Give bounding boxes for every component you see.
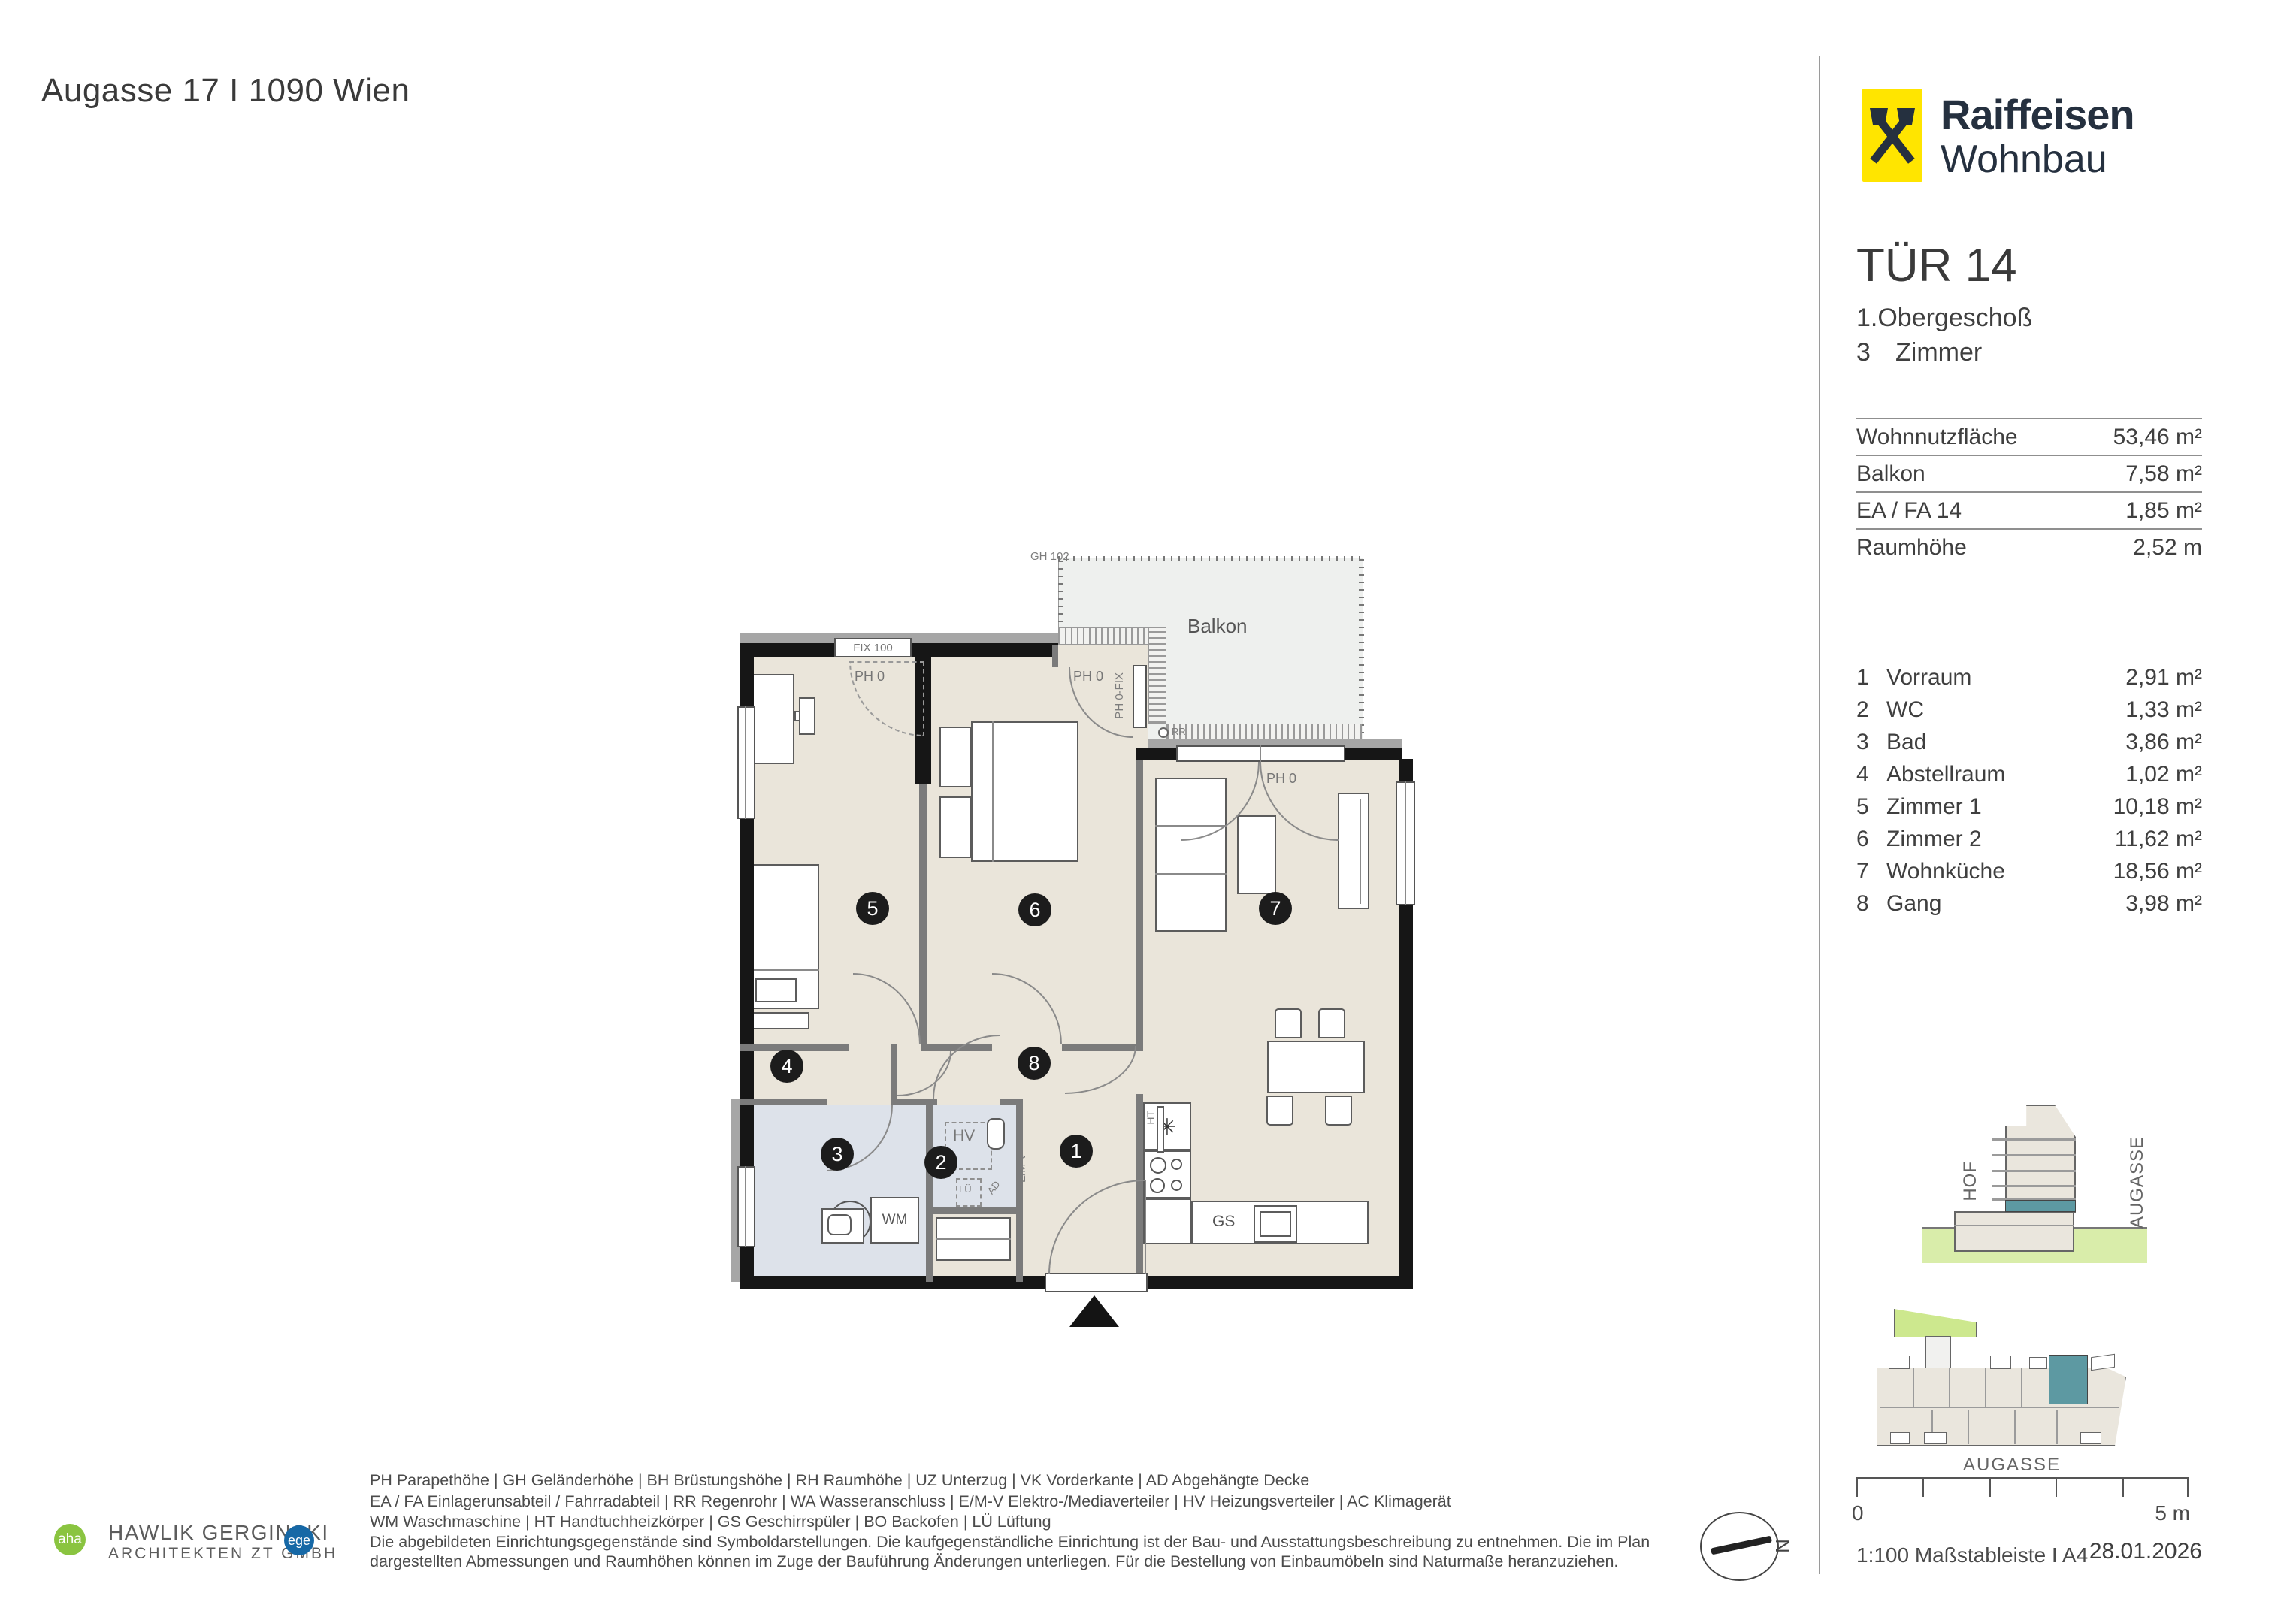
wall-bad-wc <box>926 1099 933 1282</box>
table-row: EA / FA 141,85 m² <box>1856 493 2202 530</box>
legend-line: PH Parapethöhe | GH Geländerhöhe | BH Br… <box>370 1471 1309 1490</box>
area-summary-table: Wohnnutzfläche53,46 m² Balkon7,58 m² EA … <box>1856 418 2202 565</box>
room-area: 2,91 m² <box>2125 665 2202 691</box>
footprint-bump <box>2080 1432 2101 1444</box>
room-no: 1 <box>1856 665 1886 691</box>
stove <box>1143 1150 1191 1198</box>
list-item: 5Zimmer 110,18 m² <box>1856 790 2202 823</box>
parapet-label: PH 0 <box>855 669 885 685</box>
door-leaf <box>1145 1180 1146 1274</box>
bed-double <box>971 721 1078 862</box>
window-line <box>745 1166 746 1247</box>
building-podium <box>1954 1211 2074 1252</box>
shelf <box>799 697 815 735</box>
footprint-bump <box>1990 1356 2011 1369</box>
unit-divider <box>2014 1410 2016 1444</box>
room-name: Zimmer 2 <box>1886 827 1982 852</box>
rainpipe-icon <box>1158 727 1169 738</box>
wall-bad-top <box>891 1099 926 1105</box>
scale-zero: 0 <box>1852 1501 1864 1525</box>
table-row: Raumhöhe2,52 m <box>1856 530 2202 565</box>
room-no: 3 <box>1856 730 1886 755</box>
window-fix: FIX 100 <box>834 638 912 657</box>
shelf <box>794 711 800 721</box>
row-value: 1,85 m² <box>2125 498 2202 524</box>
list-item: 3Bad3,86 m² <box>1856 726 2202 758</box>
wall-room4 <box>891 1044 897 1099</box>
room-area: 10,18 m² <box>2113 794 2202 820</box>
floor-slab-line <box>1992 1154 2076 1156</box>
nightstand <box>939 727 971 787</box>
scale-tick <box>2187 1477 2189 1497</box>
room-no: 4 <box>1856 762 1886 787</box>
entrance-door <box>1045 1273 1148 1292</box>
parapet-label: PH 0 <box>1073 669 1103 685</box>
raiffeisen-logo-icon <box>1862 89 1922 182</box>
room-name: Bad <box>1886 730 1926 755</box>
unit-divider <box>1985 1368 1986 1407</box>
scale-max: 5 m <box>2143 1501 2190 1525</box>
room-badge-8: 8 <box>1018 1047 1051 1080</box>
scale-tick <box>1922 1477 1924 1497</box>
nightstand <box>939 796 971 858</box>
washing-machine: WM <box>870 1197 919 1244</box>
floor-slab-line <box>1992 1185 2076 1187</box>
project-address: Augasse 17 I 1090 Wien <box>41 72 410 110</box>
wardrobe <box>750 674 794 764</box>
stove-burner-icon <box>1150 1178 1165 1193</box>
panel-divider-line <box>1819 56 1820 1574</box>
unit-divider <box>1968 1410 1969 1444</box>
unit-divider <box>1949 1368 1950 1407</box>
room-area: 3,86 m² <box>2125 730 2202 755</box>
room-area: 1,33 m² <box>2125 697 2202 723</box>
legend-line: WM Waschmaschine | HT Handtuchheizkörper… <box>370 1513 1051 1531</box>
brand-name-line1: Raiffeisen <box>1941 90 2134 139</box>
unit-divider <box>1913 1368 1914 1407</box>
table-row: Wohnnutzfläche53,46 m² <box>1856 419 2202 456</box>
towel-radiator <box>1157 1106 1164 1153</box>
room-badge-2: 2 <box>924 1146 957 1179</box>
footprint-bump <box>1890 1432 1910 1444</box>
balcony-railing <box>1058 556 1364 561</box>
wall-room5-6 <box>919 784 927 1044</box>
window-line <box>1405 781 1406 905</box>
room-badge-1: 1 <box>1060 1135 1093 1168</box>
room-area: 18,56 m² <box>2113 859 2202 884</box>
chair <box>1325 1096 1352 1126</box>
stove-burner-icon <box>1171 1180 1182 1191</box>
balcony-label: Balkon <box>1187 615 1248 638</box>
scale-bar-line <box>1856 1477 2189 1479</box>
lueftung-label: LÜ <box>959 1183 972 1195</box>
door-mullion <box>1260 745 1261 762</box>
unit-divider <box>2056 1410 2058 1444</box>
room-name: Zimmer 1 <box>1886 794 1982 820</box>
room-name: Vorraum <box>1886 665 1971 691</box>
balcony-decking <box>1148 627 1166 724</box>
bed-line <box>992 721 994 862</box>
floor-slab-line <box>1992 1170 2076 1172</box>
window-line <box>745 706 746 819</box>
toilet <box>987 1118 1005 1150</box>
scale-tick <box>1856 1477 1858 1497</box>
giebelkreuz-icon <box>1862 89 1922 182</box>
brand-name-line2: Wohnbau <box>1941 137 2107 182</box>
room-area: 3,98 m² <box>2125 891 2202 917</box>
room-area: 11,62 m² <box>2115 827 2202 852</box>
scale-tick <box>2056 1477 2057 1497</box>
row-label: EA / FA 14 <box>1856 498 1962 524</box>
railing-height-label: GH 102 <box>1030 550 1069 563</box>
augasse-side-label: AUGASSE <box>2127 1136 2148 1229</box>
row-value: 53,46 m² <box>2113 425 2202 450</box>
unit-floor: 1.Obergeschoß <box>1856 304 2032 333</box>
green-parcel <box>1894 1307 1977 1337</box>
bench <box>752 1012 809 1029</box>
augasse-street-label: AUGASSE <box>1963 1455 2061 1476</box>
room-area: 1,02 m² <box>2125 762 2202 787</box>
bed-line <box>752 969 819 971</box>
north-label: N <box>1771 1539 1794 1553</box>
entrance-arrow-icon <box>1069 1295 1119 1327</box>
parapet-label: PH 0 <box>1266 771 1296 787</box>
sofa-line <box>1155 873 1227 875</box>
dining-table <box>1267 1041 1365 1093</box>
wall-wc-right <box>1016 1099 1023 1282</box>
balcony-decking <box>1058 627 1148 645</box>
footprint-bump <box>2091 1354 2115 1371</box>
balcony-door-room6 <box>1133 665 1147 728</box>
room-no: 6 <box>1856 827 1886 852</box>
room-name: Abstellraum <box>1886 762 2005 787</box>
chair <box>1266 1096 1293 1126</box>
wm-label: WM <box>882 1212 908 1228</box>
aha-logo-icon: aha <box>54 1524 86 1555</box>
rainpipe-label: RR <box>1172 726 1186 737</box>
list-item: 4Abstellraum1,02 m² <box>1856 758 2202 790</box>
list-item: 6Zimmer 211,62 m² <box>1856 823 2202 855</box>
balcony-decking <box>1166 724 1362 741</box>
balcony-railing <box>1359 558 1364 741</box>
row-label: Raumhöhe <box>1856 535 1967 561</box>
wall-wc-top <box>926 1099 937 1105</box>
room-name: Wohnküche <box>1886 859 2005 884</box>
unit-rooms-word: Zimmer <box>1895 338 1982 367</box>
legend-line: EA / FA Einlagerunsabteil / Fahrradabtei… <box>370 1492 1451 1511</box>
footprint-bump <box>1889 1356 1910 1369</box>
washbasin-bowl <box>827 1214 852 1235</box>
stove-burner-icon <box>1171 1159 1182 1170</box>
scale-tick <box>2122 1477 2124 1497</box>
highlighted-unit <box>2049 1355 2088 1404</box>
podium-floor-line <box>1954 1225 2074 1226</box>
room-name: WC <box>1886 697 1924 723</box>
dishwasher-label: GS <box>1212 1213 1235 1231</box>
list-item: 1Vorraum2,91 m² <box>1856 661 2202 694</box>
room-badge-5: 5 <box>856 892 889 925</box>
floor-slab-line <box>1992 1138 2076 1141</box>
coffee-table <box>1237 815 1276 894</box>
list-item: 8Gang3,98 m² <box>1856 887 2202 920</box>
ht-label: HT <box>1145 1111 1157 1125</box>
cabinet-tall <box>1338 793 1369 909</box>
list-item: 7Wohnküche18,56 m² <box>1856 855 2202 887</box>
scale-tick <box>1989 1477 1991 1497</box>
footprint-bump <box>2029 1357 2047 1369</box>
wall-stub <box>1052 645 1058 667</box>
room-no: 7 <box>1856 859 1886 884</box>
row-label: Balkon <box>1856 461 1925 487</box>
duct-line <box>936 1238 1011 1240</box>
chair <box>1275 1008 1302 1038</box>
room-no: 5 <box>1856 794 1886 820</box>
kitchen-sink: ✳ <box>1143 1102 1191 1150</box>
row-label: Wohnnutzfläche <box>1856 425 2018 450</box>
table-row: Balkon7,58 m² <box>1856 456 2202 493</box>
stove-burner-icon <box>1150 1157 1166 1174</box>
room-badge-4: 4 <box>770 1050 803 1083</box>
window <box>737 706 755 819</box>
wall-wc-bottom <box>926 1207 1023 1214</box>
footprint-bump <box>1924 1432 1947 1444</box>
hof-label: HOF <box>1960 1161 1981 1201</box>
row-value: 2,52 m <box>2133 535 2202 561</box>
corridor-line <box>1880 1407 2119 1408</box>
cabinet-line <box>1360 799 1361 904</box>
room-name: Gang <box>1886 891 1941 917</box>
chair <box>1318 1008 1345 1038</box>
hv-label: HV <box>953 1127 975 1145</box>
room-badge-7: 7 <box>1259 892 1292 925</box>
building-tower <box>2005 1105 2076 1213</box>
room-badge-3: 3 <box>821 1138 854 1171</box>
pillow <box>755 978 797 1002</box>
ege-logo-icon: ege <box>284 1525 314 1555</box>
wall-room6-7 <box>1136 760 1143 1044</box>
fix-window-label: FIX 100 <box>853 642 893 654</box>
unit-title: TÜR 14 <box>1856 239 2017 292</box>
highlighted-floor <box>2005 1200 2076 1212</box>
unit-divider <box>2021 1368 2022 1407</box>
list-item: 2WC1,33 m² <box>1856 694 2202 726</box>
wall-bad-top <box>740 1099 827 1105</box>
unit-rooms-number: 3 <box>1856 338 1871 367</box>
building-wing <box>1925 1336 1951 1369</box>
floor-plan: GH 102 Balkon RR ✳ GS WM HV <box>740 549 1417 1360</box>
room-no: 2 <box>1856 697 1886 723</box>
room-list: 1Vorraum2,91 m² 2WC1,33 m² 3Bad3,86 m² 4… <box>1856 661 2202 920</box>
room-badge-6: 6 <box>1018 893 1051 926</box>
window <box>737 1166 755 1247</box>
legend-line: Die abgebildeten Einrichtungsgegenstände… <box>370 1533 1650 1552</box>
room-no: 8 <box>1856 891 1886 917</box>
wall-corridor <box>740 1044 849 1051</box>
kitchen-cabinet <box>1143 1198 1191 1244</box>
oven-inner <box>1260 1211 1291 1237</box>
legend-line: dargestellten Abmessungen und Raumhöhen … <box>370 1552 1618 1571</box>
row-value: 7,58 m² <box>2125 461 2202 487</box>
plan-date: 28.01.2026 <box>2029 1539 2202 1564</box>
